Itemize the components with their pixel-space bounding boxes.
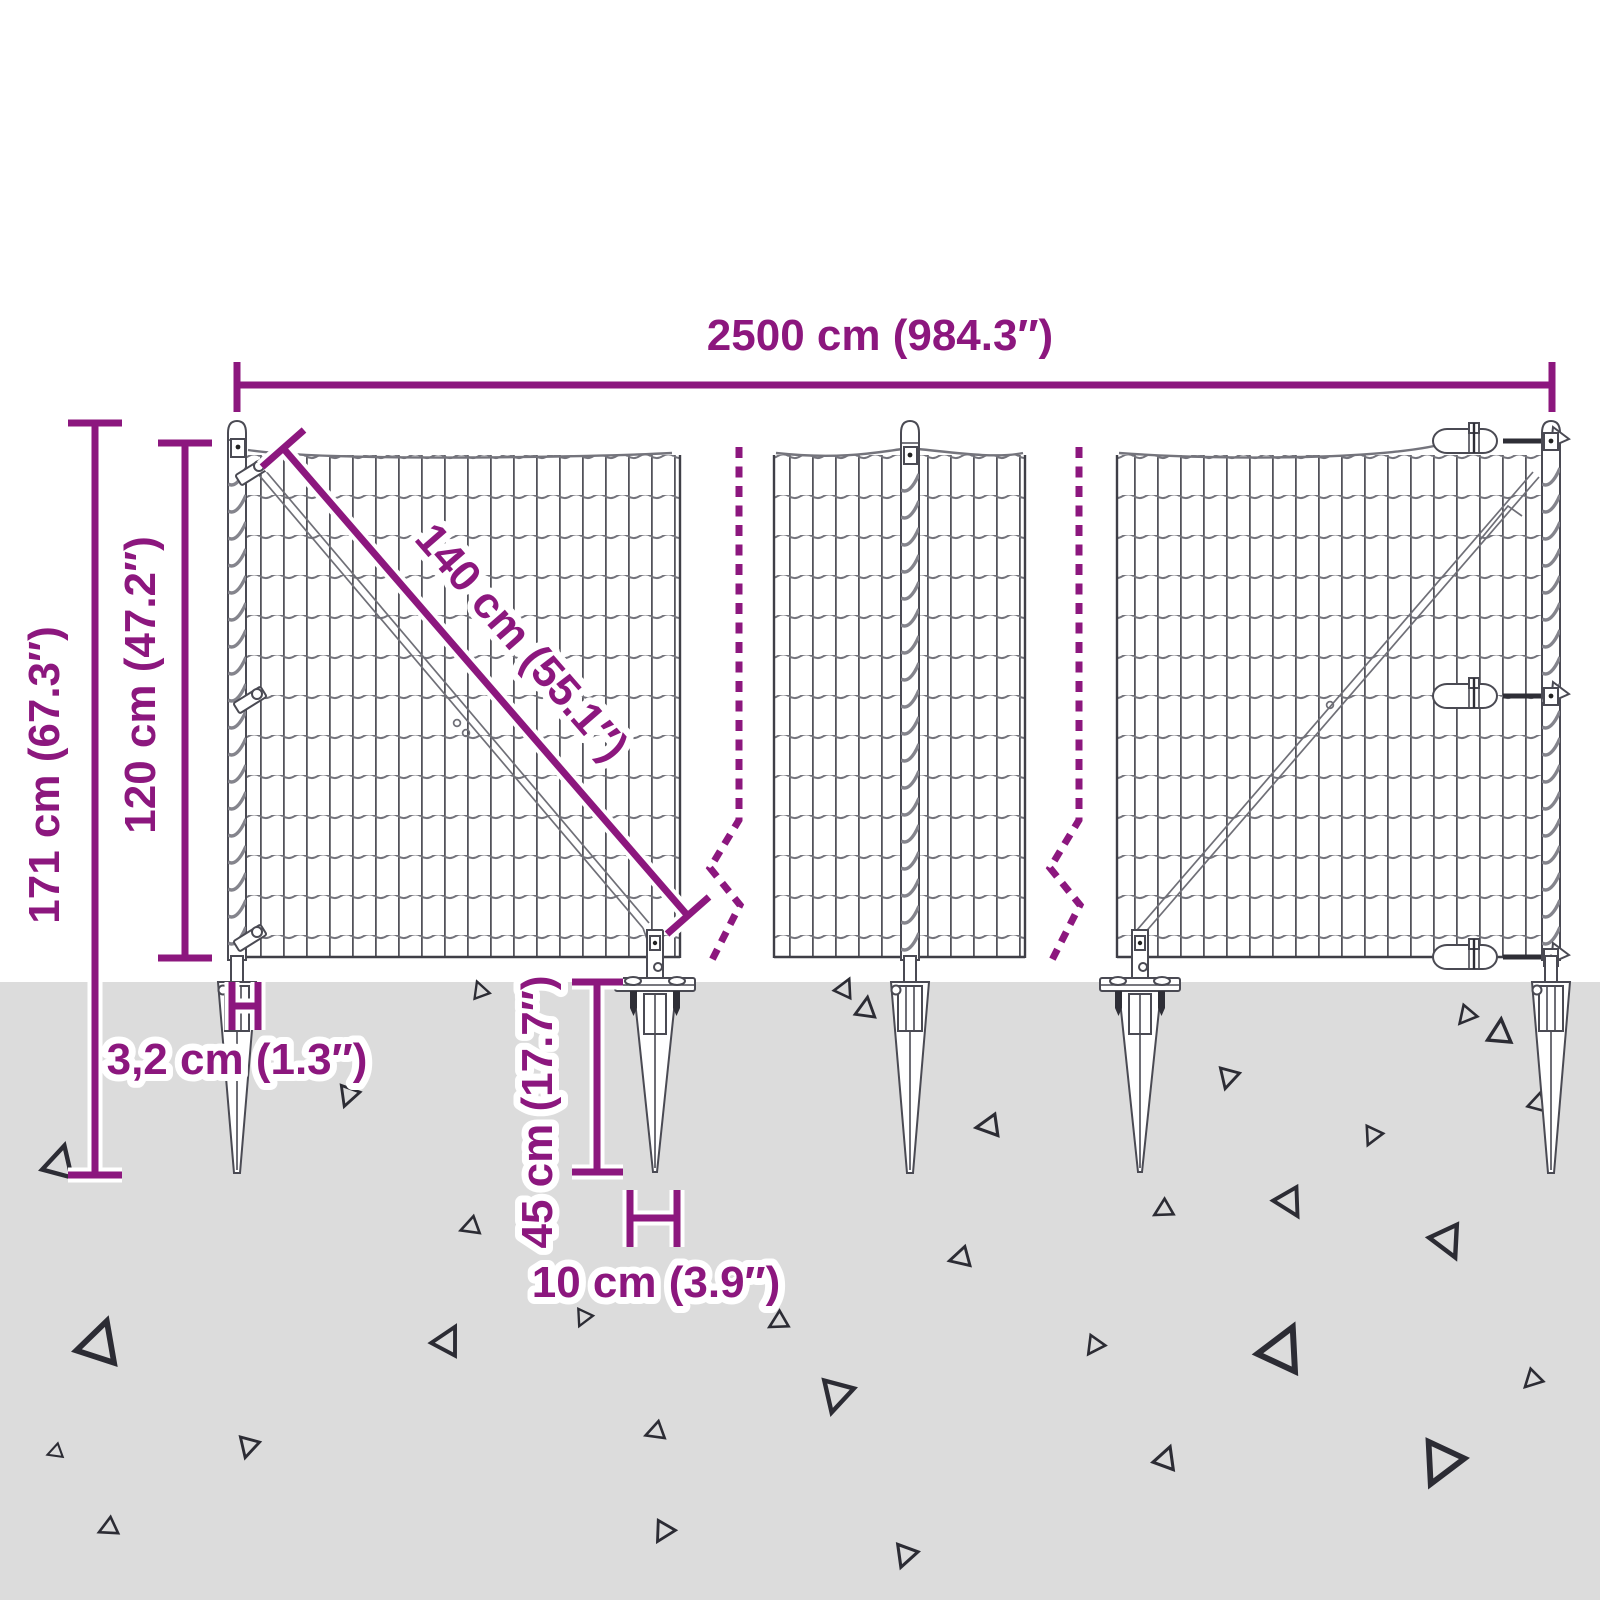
diagram-canvas: 2500 cm (984.3″) 171 cm (67.3″) 120 cm (… xyxy=(0,0,1600,1600)
fence-mesh-panels xyxy=(237,442,1551,958)
anchor-width-label: 10 cm (3.9″) xyxy=(532,1258,781,1307)
mesh-panel-left xyxy=(237,455,680,958)
post-middle xyxy=(901,421,919,984)
mesh-panel-middle xyxy=(774,455,1025,958)
overall-height-label: 171 cm (67.3″) xyxy=(20,626,69,923)
post-width-label: 3,2 cm (1.3″) xyxy=(107,1035,368,1084)
fence-height-label: 120 cm (47.2″) xyxy=(116,536,165,833)
product-dimension-diagram: 2500 cm (984.3″) 171 cm (67.3″) 120 cm (… xyxy=(0,0,1600,1600)
anchor-depth-label: 45 cm (17.7″) xyxy=(513,975,562,1248)
total-width-label: 2500 cm (984.3″) xyxy=(707,311,1053,360)
